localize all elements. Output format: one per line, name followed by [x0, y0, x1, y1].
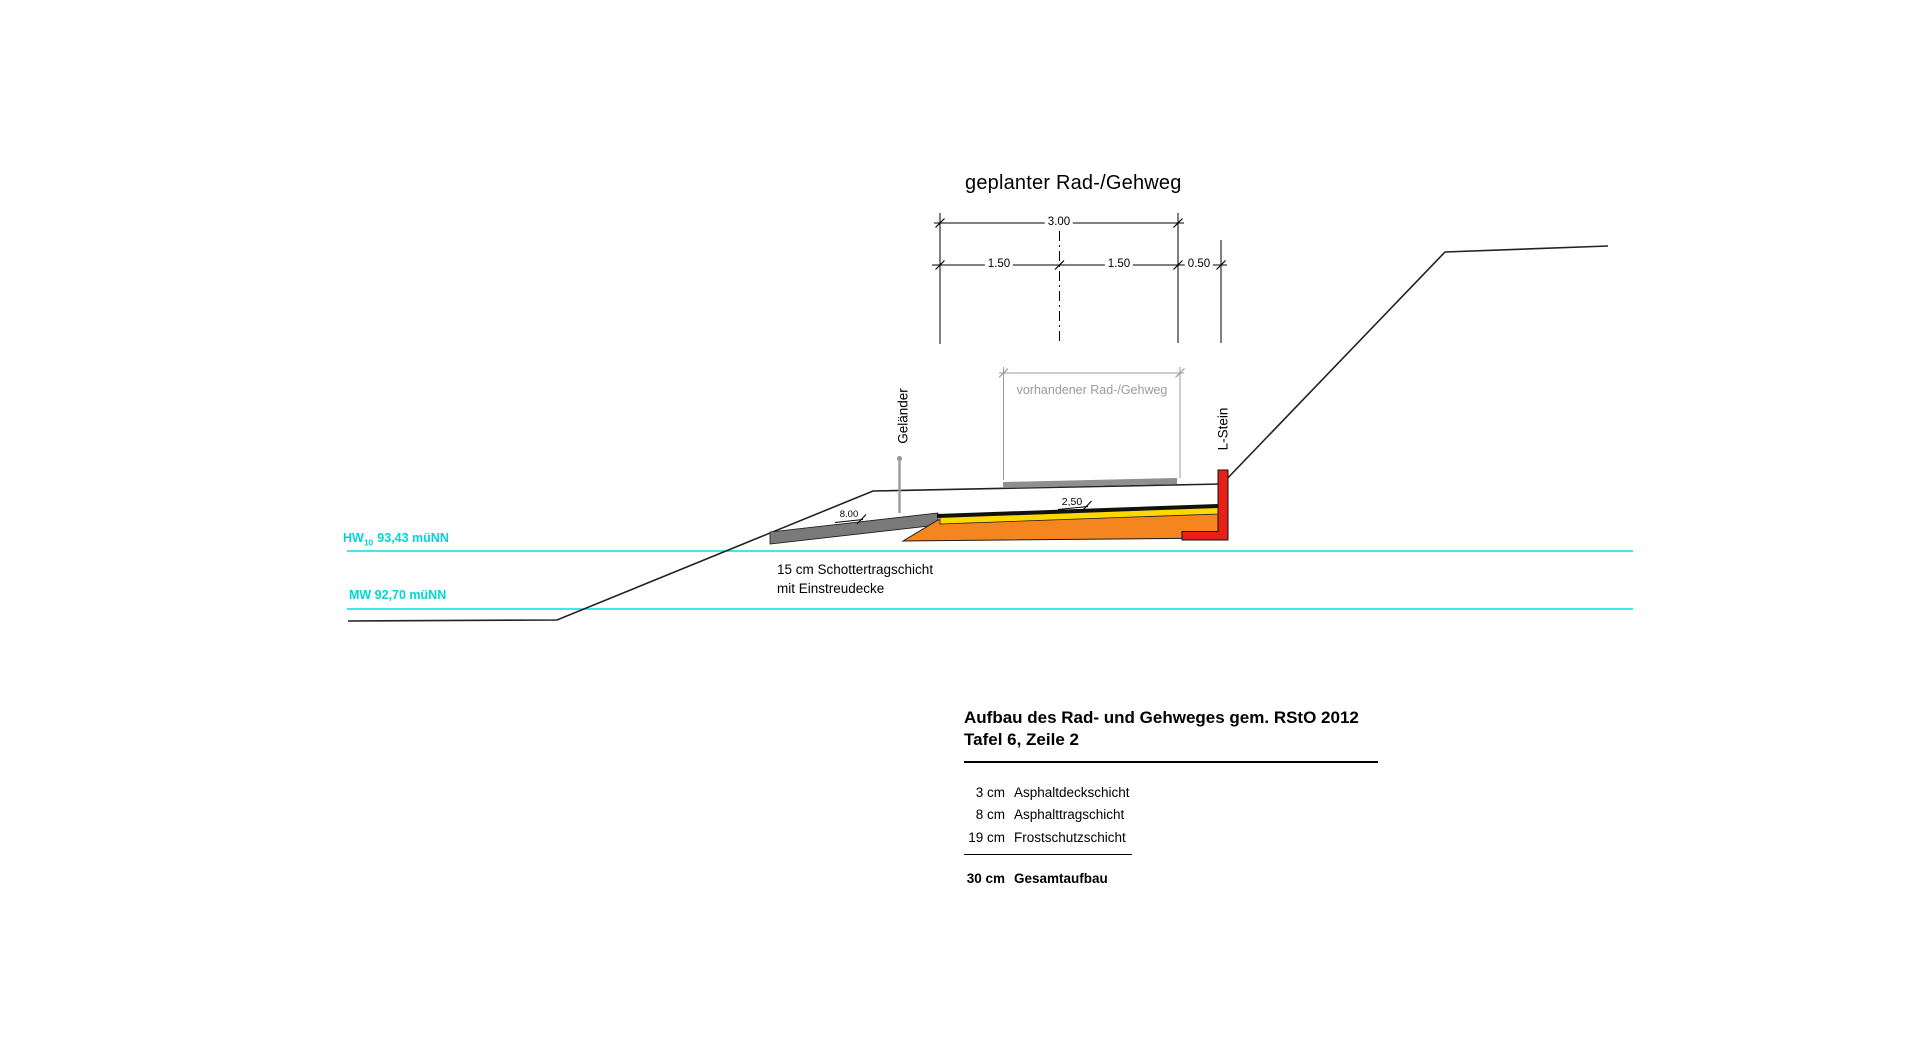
dim-left-half-label: 1.50: [985, 258, 1013, 270]
table-total-row: 30 cm Gesamtaufbau: [963, 871, 1108, 886]
railing-label: Geländer: [896, 388, 911, 444]
l-stone-label: L-Stein: [1216, 408, 1231, 451]
existing-path-label: vorhandener Rad-/Gehweg: [1017, 383, 1168, 397]
table-sum-rule: [964, 854, 1132, 855]
total-name: Gesamtaufbau: [1014, 871, 1108, 886]
hw-subscript: 10: [364, 538, 373, 548]
terrain-profile-line: [348, 246, 1608, 621]
hw-prefix: HW: [343, 531, 364, 545]
technical-drawing-canvas: geplanter Rad-/Gehweg 3.00 1.50 1.50 0.5…: [0, 0, 1911, 1063]
layer-name: Frostschutzschicht: [1014, 830, 1126, 845]
layer-thickness: 3 cm: [963, 785, 1005, 800]
hw-water-label: HW1093,43 müNN: [343, 531, 449, 548]
slope-path-label: 2,50: [1062, 496, 1082, 508]
slope-ramp-label: 8.00: [840, 509, 859, 520]
total-thickness: 30 cm: [963, 871, 1005, 886]
dim-right-half-label: 1.50: [1105, 258, 1133, 270]
hw-value: 93,43 müNN: [377, 531, 449, 545]
layer-name: Asphalttragschicht: [1014, 807, 1124, 822]
gravel-note-line2: mit Einstreudecke: [777, 580, 933, 599]
table-header-rule: [964, 761, 1378, 763]
layer-name: Asphaltdeckschicht: [1014, 785, 1130, 800]
table-row: 8 cm Asphalttragschicht: [963, 807, 1124, 822]
layer-thickness: 8 cm: [963, 807, 1005, 822]
cross-section-drawing: [0, 0, 1911, 1063]
gravel-note-line1: 15 cm Schottertragschicht: [777, 561, 933, 580]
table-title-line2: Tafel 6, Zeile 2: [964, 729, 1359, 751]
drawing-title: geplanter Rad-/Gehweg: [965, 172, 1182, 195]
table-title: Aufbau des Rad- und Gehweges gem. RStO 2…: [964, 707, 1359, 750]
table-title-line1: Aufbau des Rad- und Gehweges gem. RStO 2…: [964, 707, 1359, 729]
railing-post-knob: [897, 456, 902, 461]
table-row: 19 cm Frostschutzschicht: [963, 830, 1126, 845]
mw-water-label: MW 92,70 müNN: [349, 588, 446, 602]
dim-total-label: 3.00: [1045, 216, 1073, 228]
dim-edge-strip-label: 0.50: [1185, 258, 1213, 270]
layer-thickness: 19 cm: [963, 830, 1005, 845]
table-row: 3 cm Asphaltdeckschicht: [963, 785, 1130, 800]
gravel-note: 15 cm Schottertragschicht mit Einstreude…: [777, 561, 933, 598]
